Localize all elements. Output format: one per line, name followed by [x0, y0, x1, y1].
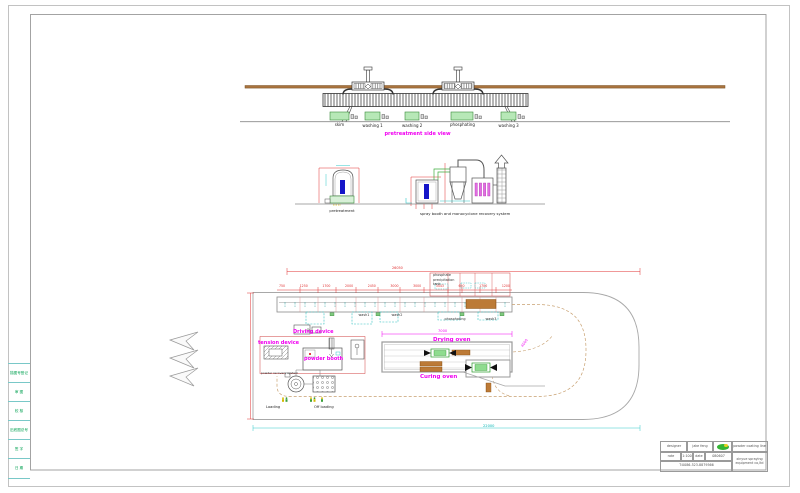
ovens	[382, 342, 545, 392]
strip-cell-5: 日 期	[8, 458, 30, 479]
plan-label-wash3: wash3	[482, 318, 500, 322]
phone-number: T:0086-523-8879566	[660, 460, 733, 472]
spray-booth-section	[406, 155, 508, 209]
company-logo-accent	[724, 444, 728, 447]
dim-6: 3000	[413, 284, 421, 288]
tank-label-washing3: washing 3	[497, 124, 520, 129]
dim-row: 750 1250 1700 2000 2450 3000 3000 3443 6…	[279, 284, 510, 288]
signature-strip: 描图号登记 审 图 校 核 旧底图总号 签 字 日 期	[8, 363, 30, 477]
strip-cell-0: 描图号登记	[8, 363, 30, 383]
dim-5: 3000	[390, 284, 398, 288]
dim-4: 2450	[368, 284, 376, 288]
exhaust-stack-2	[433, 67, 483, 95]
plan-label-powder-recovery: powder recovery system	[261, 372, 298, 375]
strip-cell-3: 旧底图总号	[8, 420, 30, 440]
dim-3: 2000	[345, 284, 353, 288]
plan-label-drying-oven: Drying oven	[433, 337, 471, 343]
pretreatment-section-label: pretreatment	[322, 209, 362, 213]
plan-view	[170, 268, 640, 431]
tank-label-phosphating: phosphating	[450, 123, 474, 128]
plan-label-tension-device: tension device	[258, 341, 299, 347]
dim-7: 3443	[436, 284, 444, 288]
dim-total-bottom: 22000	[483, 424, 494, 428]
drawing-linework	[0, 0, 800, 493]
dim-2: 1700	[322, 284, 330, 288]
dim-10: 1200	[502, 284, 510, 288]
operator-figures	[282, 397, 323, 402]
strip-cell-1: 审 图	[8, 382, 30, 402]
cad-drawing-sheet: skim washing 1 washing 2 phosphating was…	[0, 0, 800, 493]
dim-1: 1250	[300, 284, 308, 288]
exhaust-stack-1	[343, 67, 393, 95]
plan-label-loading: Loading	[266, 405, 280, 409]
plan-label-wash1: wash1	[355, 314, 373, 318]
sheet-frame	[9, 6, 790, 487]
plan-label-offloading: Off loading	[314, 405, 334, 409]
company-name: xinyue spraying equipment co,ltd	[731, 451, 768, 472]
plan-label-driving-device: Driving device	[293, 330, 333, 336]
spray-section-label: spray booth and monocyclone recovery sys…	[420, 212, 510, 216]
dim-0: 750	[279, 284, 285, 288]
plan-label-wash2: wash2	[388, 314, 406, 318]
flow-arrows	[170, 332, 198, 386]
section-views	[295, 155, 545, 209]
title-block: designer jake feng powder coating line r…	[660, 441, 766, 470]
pretreatment-section	[319, 166, 359, 206]
dim-oven: 7000	[438, 329, 447, 333]
pretreatment-side-view	[240, 67, 730, 122]
strip-cell-4: 签 字	[8, 439, 30, 459]
plan-label-curing-oven: Curing oven	[420, 374, 457, 380]
tank-label-skim: skim	[330, 123, 349, 128]
plan-label-phosphating: phosphating	[442, 318, 468, 322]
dim-9: 1700	[479, 284, 487, 288]
tank-label-washing2: washing 2	[402, 124, 422, 129]
dim-8: 650	[458, 284, 464, 288]
strip-cell-2: 校 核	[8, 401, 30, 421]
plan-label-powder-booth: powder booth	[304, 357, 343, 363]
side-view-title: pretreatment side view	[360, 132, 475, 138]
dim-total-top: 26050	[392, 267, 403, 271]
tank-label-washing1: washing 1	[361, 124, 384, 129]
